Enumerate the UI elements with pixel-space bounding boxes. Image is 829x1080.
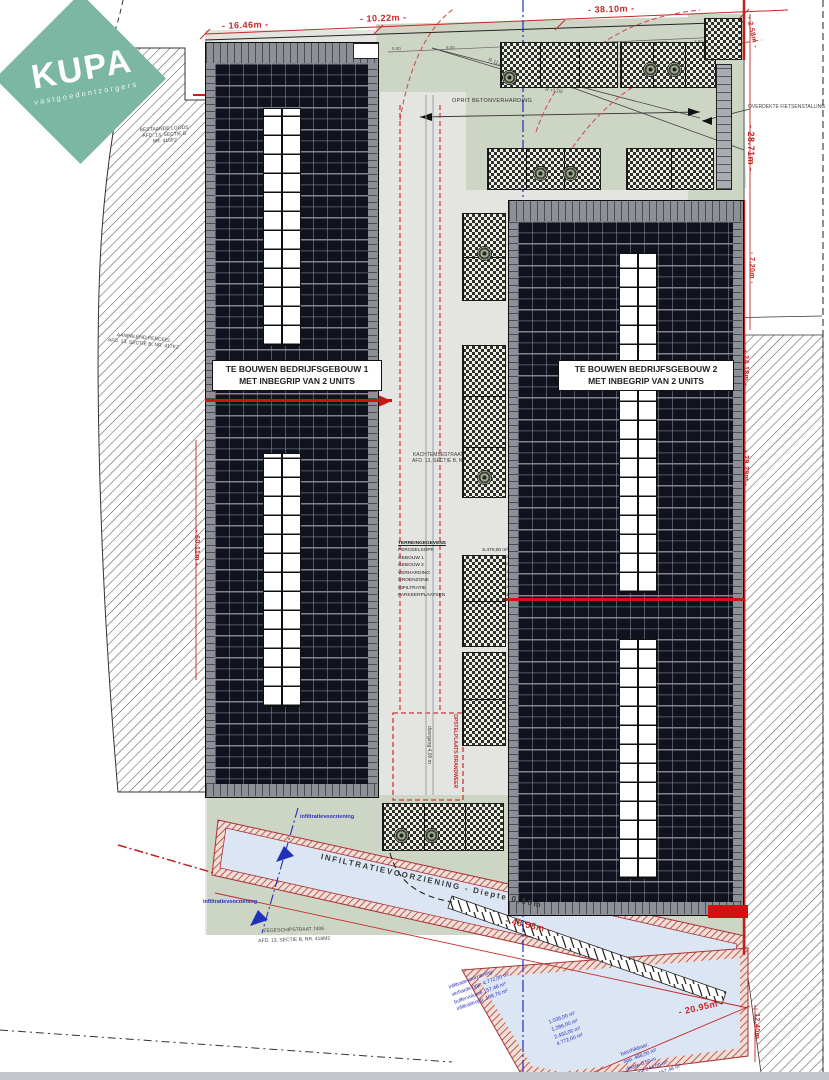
bike-shed	[716, 64, 732, 190]
tree-icon	[533, 166, 548, 181]
tree-icon	[394, 828, 409, 843]
doorgang-label: doorgang 4,00 m	[426, 726, 432, 764]
fietsenstalling-label: OVERDEKTE FIETSENSTALLING	[748, 104, 825, 110]
dim-tick-label: 6.00	[446, 45, 455, 50]
roof-notch	[353, 43, 379, 59]
dim-right-b: - 28.71m -	[746, 125, 756, 172]
skylight-strip	[263, 108, 301, 346]
building-1-label-line2: MET INBEGRIP VAN 2 UNITS	[216, 375, 378, 387]
roof-edge-right	[368, 63, 377, 784]
legend-row: PERCEELSOPP.6.470,00 m²	[398, 547, 508, 554]
tree-icon	[643, 62, 658, 77]
building-2-label: TE BOUWEN BEDRIJFSGEBOUW 2 MET INBEGRIP …	[558, 360, 734, 391]
dim-tick-label: 5.00	[392, 46, 401, 51]
legend-label: PERCEELSOPP.	[398, 547, 434, 554]
infiltration-blue-label-2: infiltratievoorziening	[203, 899, 257, 905]
building-1	[205, 42, 379, 798]
dim-right-c: - 7.20m -	[748, 252, 755, 284]
parking-spots	[704, 18, 742, 60]
brandweer-label: OPSTELPLAATS BRANDWEER	[452, 714, 458, 788]
page-edge-strip	[0, 1072, 829, 1080]
skylight-strip	[619, 639, 657, 879]
parking-spots	[626, 148, 714, 190]
roof-edge-top	[509, 201, 742, 221]
building-2-label-line1: TE BOUWEN BEDRIJFSGEBOUW 2	[562, 363, 730, 375]
tree-icon	[667, 62, 682, 77]
kupa-logo: KUPA vastgoedontzorgers	[0, 0, 180, 180]
tree-icon	[477, 470, 492, 485]
infiltration-blue-label-1: infiltratievoorziening	[300, 814, 354, 820]
dim-bottom-c: - 12.40m -	[753, 1008, 760, 1044]
unit-split-line-1	[205, 399, 392, 402]
tree-icon	[424, 828, 439, 843]
parking-spots	[500, 42, 618, 88]
legend-label: GEBOUW 1	[398, 555, 424, 562]
parking-spots	[462, 652, 506, 746]
roof-edge-bottom	[206, 784, 377, 796]
roof-edge-top	[206, 43, 377, 63]
parcel-bottom: ZEGESCHIPSTRAAT 7406 AFD. 13, SECTIE B, …	[258, 924, 331, 946]
parking-spots	[462, 555, 506, 647]
parking-spots	[382, 803, 504, 851]
legend-label: PARKEERPLAATSEN	[398, 592, 445, 599]
building-1-label-line1: TE BOUWEN BEDRIJFSGEBOUW 1	[216, 363, 378, 375]
building-1-label: TE BOUWEN BEDRIJFSGEBOUW 1 MET INBEGRIP …	[212, 360, 382, 391]
legend-label: VERHARDING	[398, 570, 430, 577]
dim-left-side: - 60.11m -	[193, 530, 200, 566]
oprit-label: OPRIT BETONVERHARDING	[452, 98, 532, 104]
skylight-strip	[619, 253, 657, 593]
dim-right-e: - 29.29m -	[742, 450, 749, 486]
dim-top-mid: - 10.22m -	[360, 12, 407, 24]
building-2	[508, 200, 744, 916]
red-corner-patch	[708, 905, 748, 918]
roof-edge-right	[733, 221, 742, 902]
legend-label: INFILTRATIE	[398, 585, 426, 592]
dim-top-left: - 16.46m -	[222, 19, 269, 31]
dim-right-d: - 24.18m -	[742, 350, 749, 386]
roof-edge-left	[206, 63, 215, 784]
legend-label: GROENZONE	[398, 577, 429, 584]
legend-value: 6.470,00 m²	[482, 547, 508, 554]
unit-split-line-2	[498, 598, 745, 601]
site-plan-canvas: TE BOUWEN BEDRIJFSGEBOUW 1 MET INBEGRIP …	[0, 0, 829, 1080]
legend-title: TERREINGEGEVENS	[398, 540, 508, 547]
legend-label: GEBOUW 2	[398, 562, 424, 569]
roof-edge-left	[509, 221, 518, 902]
hatched-parcel-right	[745, 335, 823, 1080]
tree-icon	[502, 70, 517, 85]
tree-icon	[477, 246, 492, 261]
skylight-strip	[263, 453, 301, 707]
dim-top-right: - 38.10m -	[588, 3, 635, 15]
building-2-label-line2: MET INBEGRIP VAN 2 UNITS	[562, 375, 730, 387]
tree-icon	[563, 166, 578, 181]
